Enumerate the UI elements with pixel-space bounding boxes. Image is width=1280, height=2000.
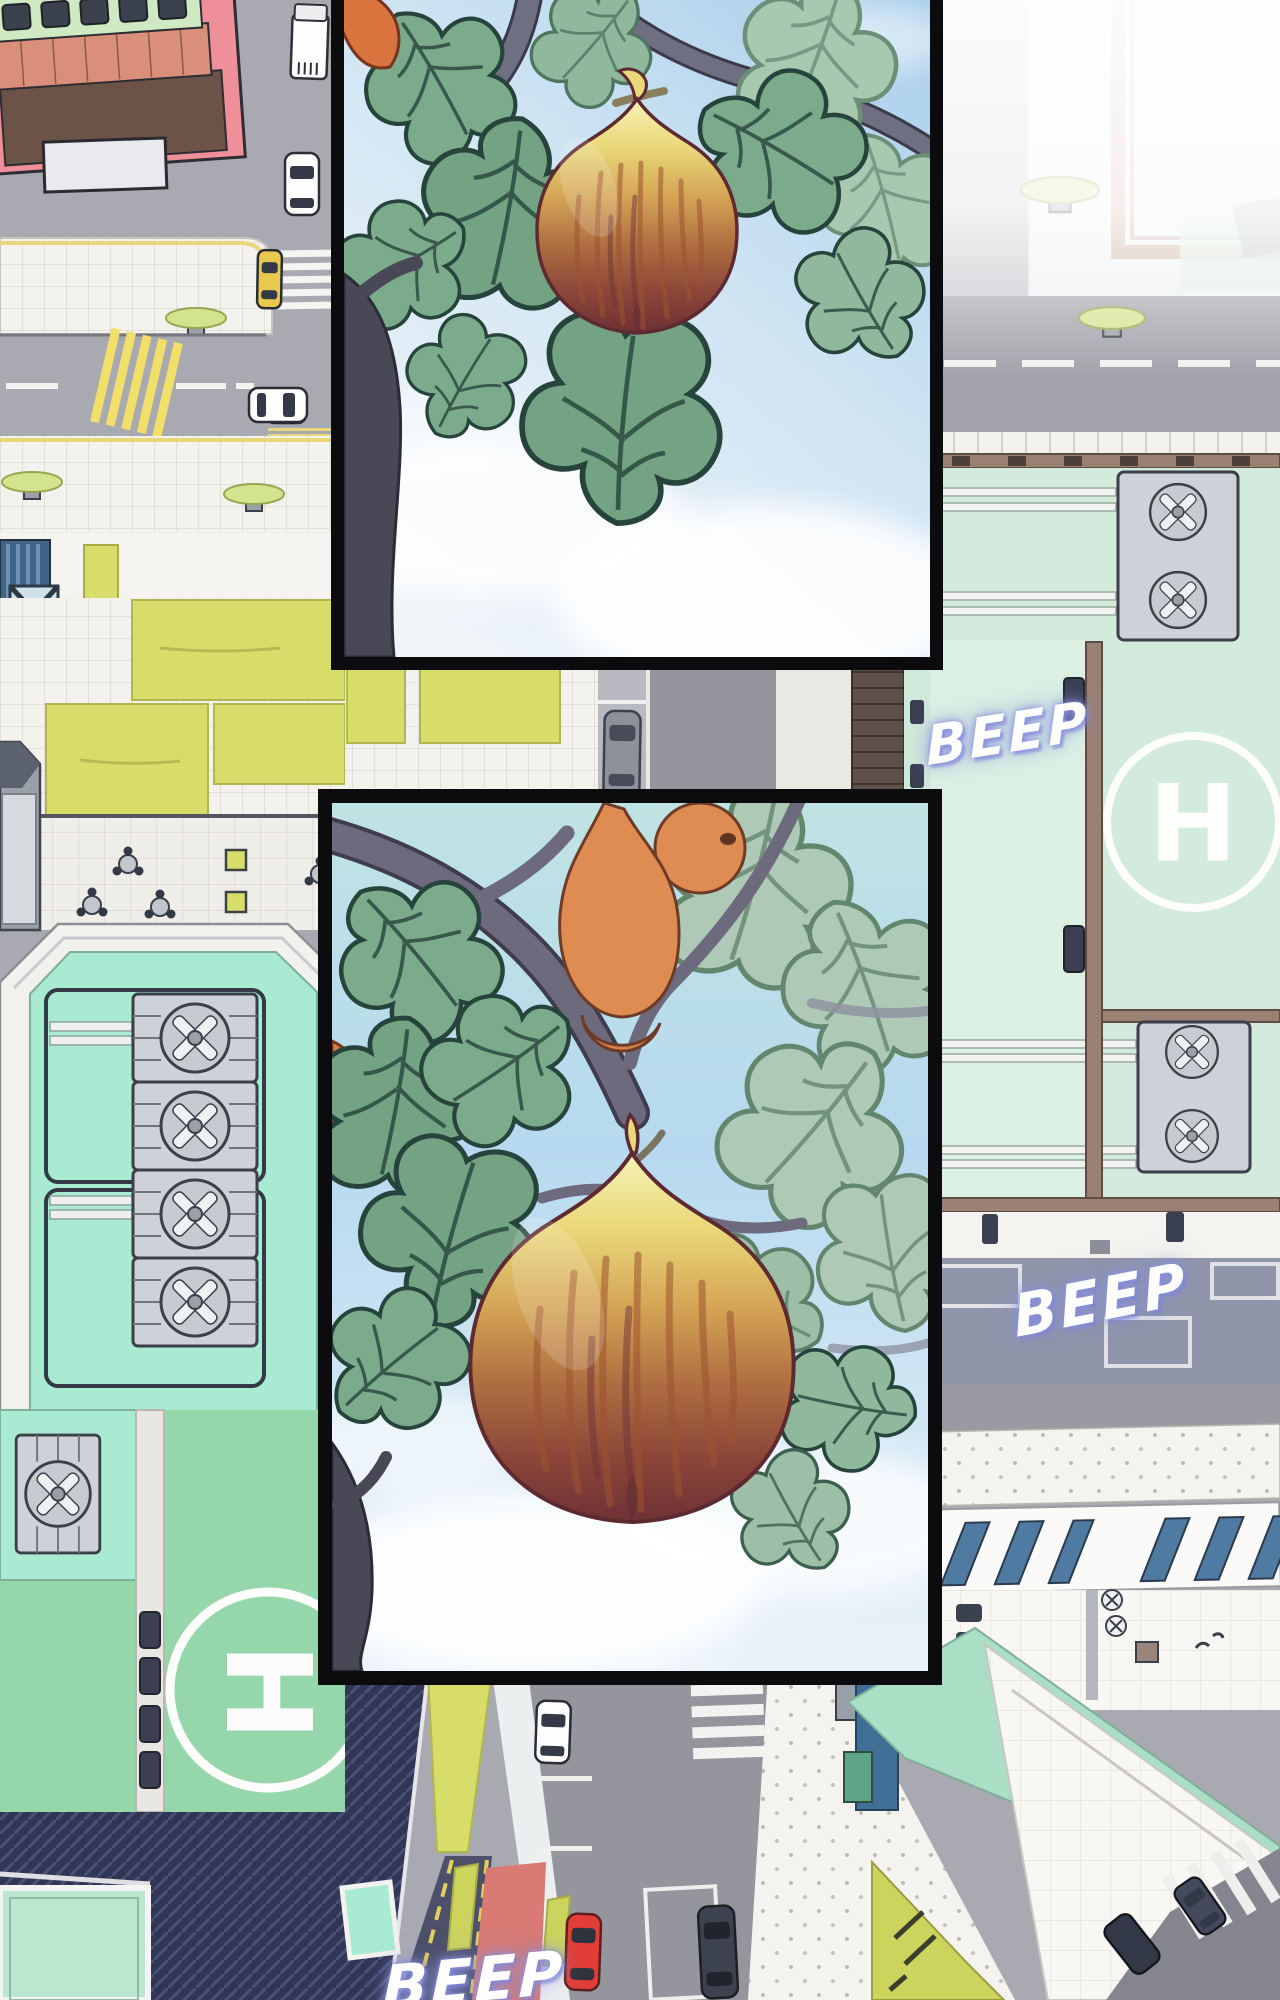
- car: [285, 153, 319, 215]
- road-center: [646, 657, 776, 803]
- sidewalk: [0, 238, 272, 334]
- right-district: H: [930, 0, 1280, 1384]
- panel-2-art-fig-tree: [332, 803, 928, 1671]
- helipad-right-label: H: [1149, 763, 1238, 886]
- teal-roof-corner: [342, 1882, 398, 1958]
- hvac-fan-icon: [133, 1082, 257, 1170]
- road-west: [0, 328, 307, 438]
- webtoon-page: H: [0, 0, 1280, 2000]
- middle-strip: [345, 657, 930, 803]
- crosswalk: [275, 249, 338, 309]
- hvac-fan-icon: [133, 994, 257, 1082]
- helipad-roof-left: H: [0, 1410, 366, 1812]
- hvac-unit-top: [1118, 472, 1238, 640]
- hvac-fan-icon: [133, 1258, 257, 1346]
- sidewalk: [776, 657, 852, 803]
- roof-sign: [43, 138, 167, 192]
- red-car: [565, 1913, 602, 1990]
- plaza-canopy: [0, 742, 40, 930]
- comic-panel-1: [331, 0, 943, 670]
- car: [603, 711, 640, 798]
- left-district: H: [0, 0, 366, 2000]
- car: [698, 1905, 739, 1999]
- dark-wall: [852, 657, 904, 803]
- comic-panel-2: [318, 789, 942, 1685]
- hvac-fan-icon: [16, 1435, 100, 1553]
- light-haze: [930, 0, 1280, 378]
- car: [249, 388, 307, 422]
- taxi: [257, 250, 282, 308]
- hvac-unit-bottom: [1138, 1022, 1250, 1172]
- lawn: [347, 659, 560, 743]
- bottom-left-building: [0, 1812, 345, 2000]
- truck: [290, 4, 329, 79]
- yellow-crosswalk: [90, 328, 183, 438]
- mint-wall: [0, 1888, 148, 2000]
- panel-1-art-fig-closeup: [344, 0, 930, 657]
- helipad-left-label: H: [199, 1643, 337, 1742]
- solar-skylight-row: [929, 1502, 1280, 1594]
- octagon-roof-building: [0, 924, 345, 1412]
- hvac-fan-icon: [133, 1170, 257, 1258]
- car: [535, 1700, 571, 1763]
